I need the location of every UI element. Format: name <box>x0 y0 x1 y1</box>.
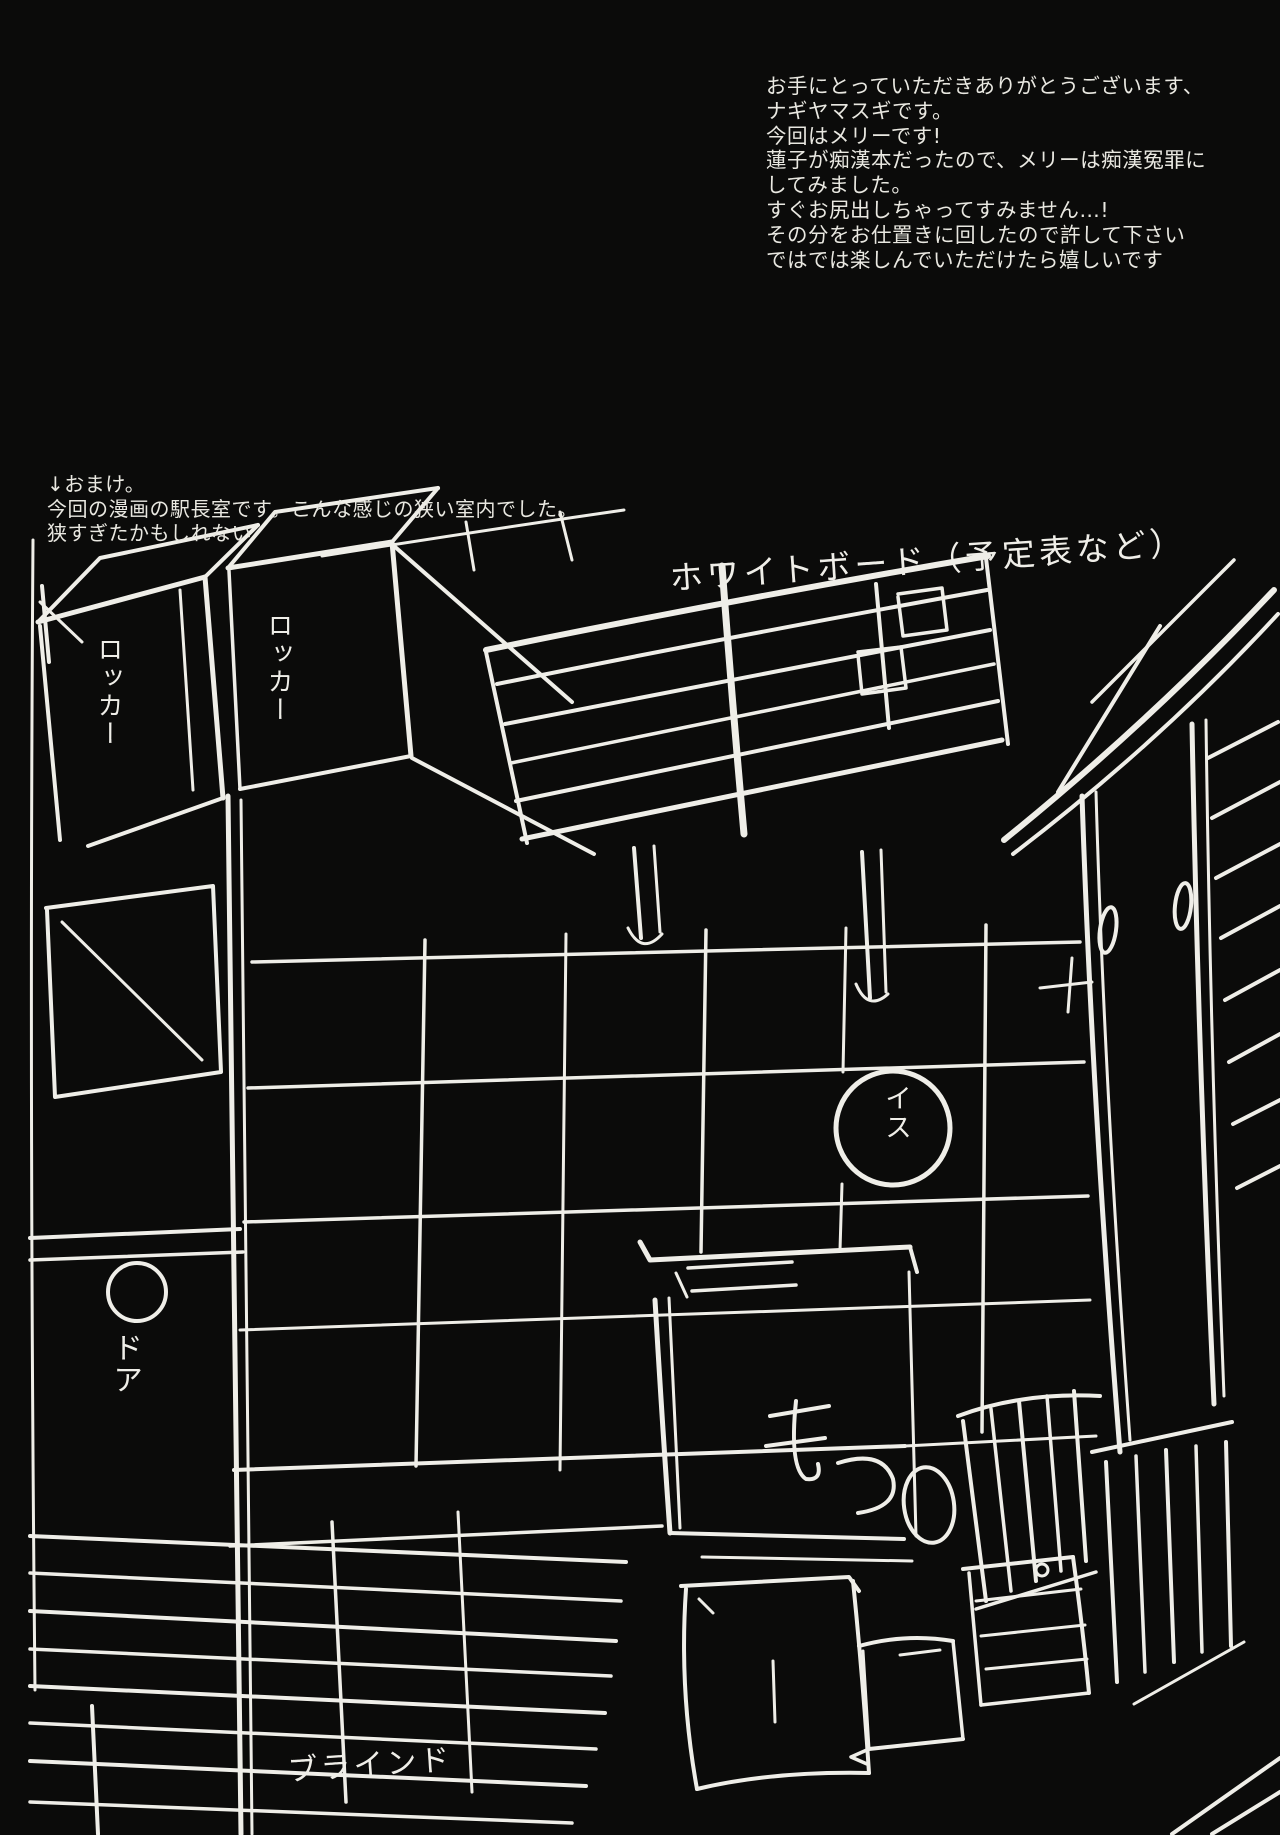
afterword-line: お手にとっていただきありがとうございます、 <box>766 74 1236 99</box>
desk-sketch <box>640 1242 1100 1609</box>
afterword-line: ではでは楽しんでいただけたら嬉しいです <box>766 248 1236 273</box>
afterword-line: 蓮子が痴漢本だったので、メリーは痴漢冤罪に <box>766 148 1236 173</box>
omake-line: ↓おまけ。 <box>47 472 607 497</box>
afterword-line: その分をお仕置きに回したので許して下さい <box>766 223 1236 248</box>
afterword-text: お手にとっていただきありがとうございます、 ナギヤマスギです。 今回はメリーです… <box>766 74 1236 272</box>
locker-label-right: ロッカー <box>260 612 297 762</box>
omake-note: ↓おまけ。 今回の漫画の駅長室です。こんな感じの狭い室内でした。 狭すぎたかもし… <box>47 472 607 546</box>
doujin-afterword-page: お手にとっていただきありがとうございます、 ナギヤマスギです。 今回はメリーです… <box>0 0 1280 1835</box>
door-label: ドア <box>102 1332 146 1482</box>
locker-label-left: ロッカー <box>90 636 127 786</box>
chair-label: イス <box>876 1084 915 1179</box>
afterword-line: してみました。 <box>766 173 1236 198</box>
omake-line: 狭すぎたかもしれない <box>47 521 607 546</box>
omake-line: 今回の漫画の駅長室です。こんな感じの狭い室内でした。 <box>47 497 607 522</box>
afterword-line: 今回はメリーです! <box>766 124 1236 149</box>
afterword-line: ナギヤマスギです。 <box>766 99 1236 124</box>
afterword-line: すぐお尻出しちゃってすみません…! <box>766 198 1236 223</box>
room-sketch <box>0 0 1280 1835</box>
